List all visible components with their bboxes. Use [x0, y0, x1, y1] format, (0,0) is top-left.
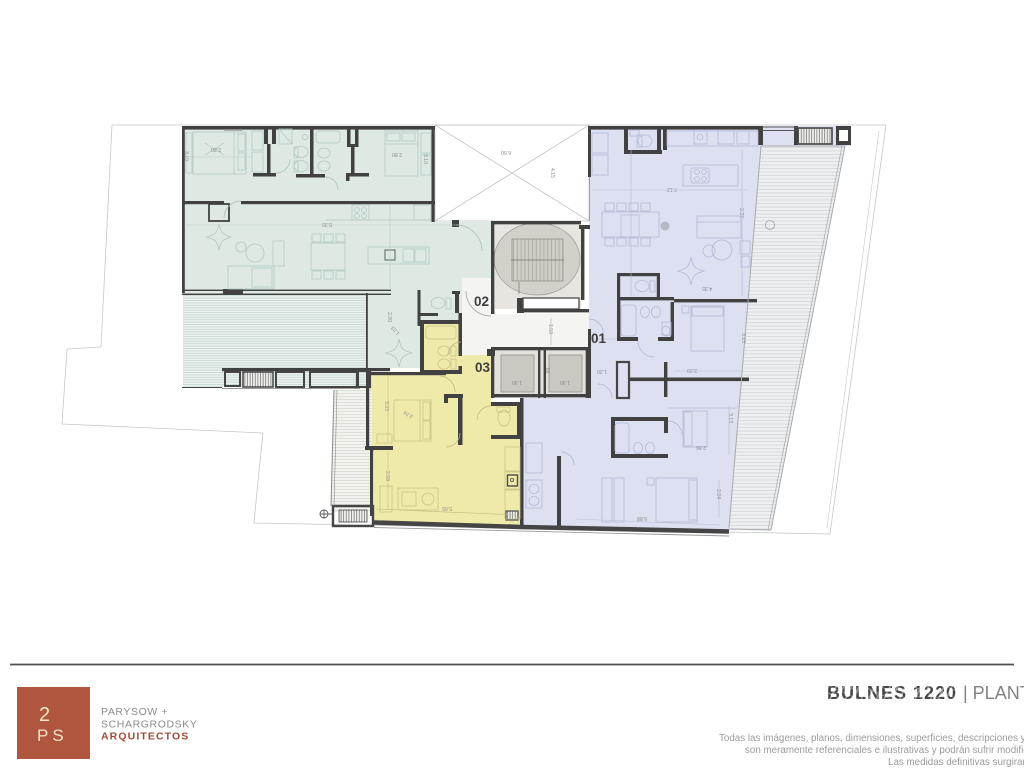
svg-text:3.13: 3.13: [727, 413, 733, 423]
svg-text:son meramente referenciales e: son meramente referenciales e ilustrativ…: [745, 745, 1024, 756]
svg-text:02: 02: [474, 294, 489, 309]
svg-text:01: 01: [591, 331, 607, 346]
svg-text:| PLANTA: | PLANTA: [963, 683, 1024, 703]
svg-text:1.50: 1.50: [547, 324, 553, 334]
svg-text:5.65: 5.65: [442, 505, 452, 511]
svg-text:3.10: 3.10: [422, 154, 428, 164]
svg-text:4.15: 4.15: [549, 168, 555, 178]
svg-text:Las medidas definitivas surgir: Las medidas definitivas surgiran del p: [888, 757, 1024, 768]
svg-text:3.13: 3.13: [740, 333, 746, 343]
svg-text:Todas las imágenes, planos, di: Todas las imágenes, planos, dimensiones,…: [719, 733, 1024, 744]
svg-text:2: 2: [39, 704, 50, 726]
svg-text:BULNES 1220: BULNES 1220: [827, 683, 957, 703]
svg-text:ARQUITECTOS: ARQUITECTOS: [101, 731, 189, 743]
svg-text:2.00: 2.00: [386, 312, 392, 322]
svg-text:1.90: 1.90: [560, 379, 570, 385]
svg-text:SCHARGRODSKY: SCHARGRODSKY: [101, 719, 197, 731]
svg-text:PS: PS: [37, 726, 68, 745]
svg-text:2.37: 2.37: [738, 208, 744, 218]
svg-text:2.80: 2.80: [211, 146, 221, 152]
svg-text:PARYSOW +: PARYSOW +: [101, 706, 168, 718]
svg-text:2.80: 2.80: [392, 151, 402, 157]
svg-text:8.30: 8.30: [322, 221, 332, 227]
svg-text:5.88: 5.88: [637, 515, 647, 521]
svg-text:2.86: 2.86: [696, 444, 706, 450]
svg-text:3.10: 3.10: [183, 151, 189, 161]
svg-text:3.39: 3.39: [687, 367, 697, 373]
svg-text:2.94: 2.94: [715, 489, 721, 499]
svg-text:03: 03: [475, 360, 491, 375]
svg-text:7.12: 7.12: [667, 186, 677, 192]
svg-text:1.90: 1.90: [512, 379, 522, 385]
svg-text:6.50: 6.50: [501, 149, 511, 155]
svg-text:4.35: 4.35: [702, 285, 712, 291]
svg-text:1.20: 1.20: [597, 368, 607, 374]
svg-text:2.58: 2.58: [384, 471, 390, 481]
